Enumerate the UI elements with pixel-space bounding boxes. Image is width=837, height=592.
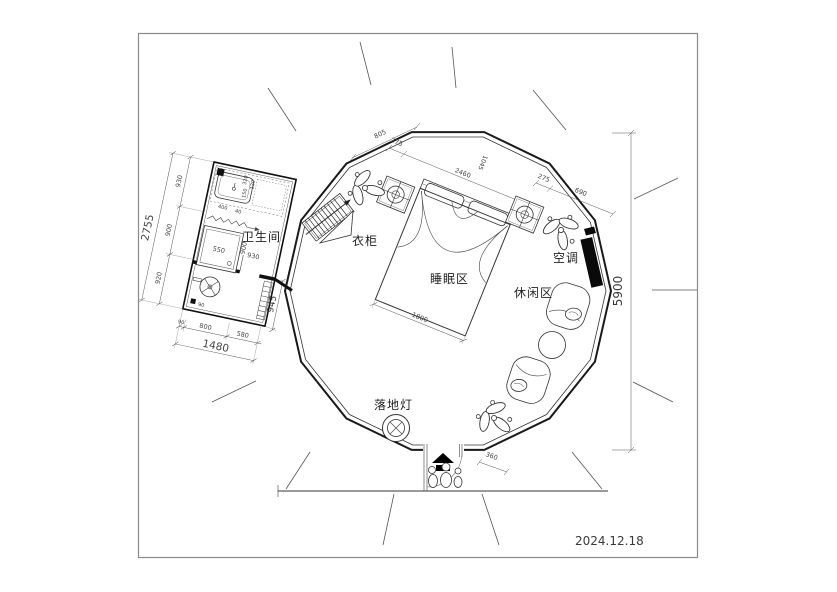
label-wardrobe: 衣柜: [352, 233, 378, 248]
floor-plan-svg: 360 5900 805 275 2460 1045 275 690: [0, 0, 837, 592]
label-sleeping-area: 睡眠区: [430, 272, 469, 286]
shower: 550: [196, 225, 243, 272]
label-floor-lamp: 落地灯: [374, 398, 413, 412]
column: [190, 298, 196, 304]
date-text: 2024.12.18: [575, 534, 644, 548]
dim-overall-text: 5900: [611, 276, 625, 307]
side-table: [539, 332, 566, 359]
label-leisure-area: 休闲区: [514, 286, 553, 300]
column: [216, 168, 224, 176]
label-bathroom: 卫生间: [242, 230, 281, 244]
drawing-page: 360 5900 805 275 2460 1045 275 690: [0, 0, 837, 592]
chair-cushion: [511, 379, 527, 392]
floor-lamp-icon: [383, 415, 410, 442]
chair-cushion: [565, 308, 581, 321]
label-air-conditioner: 空调: [553, 251, 579, 265]
door-opening: [423, 440, 464, 452]
